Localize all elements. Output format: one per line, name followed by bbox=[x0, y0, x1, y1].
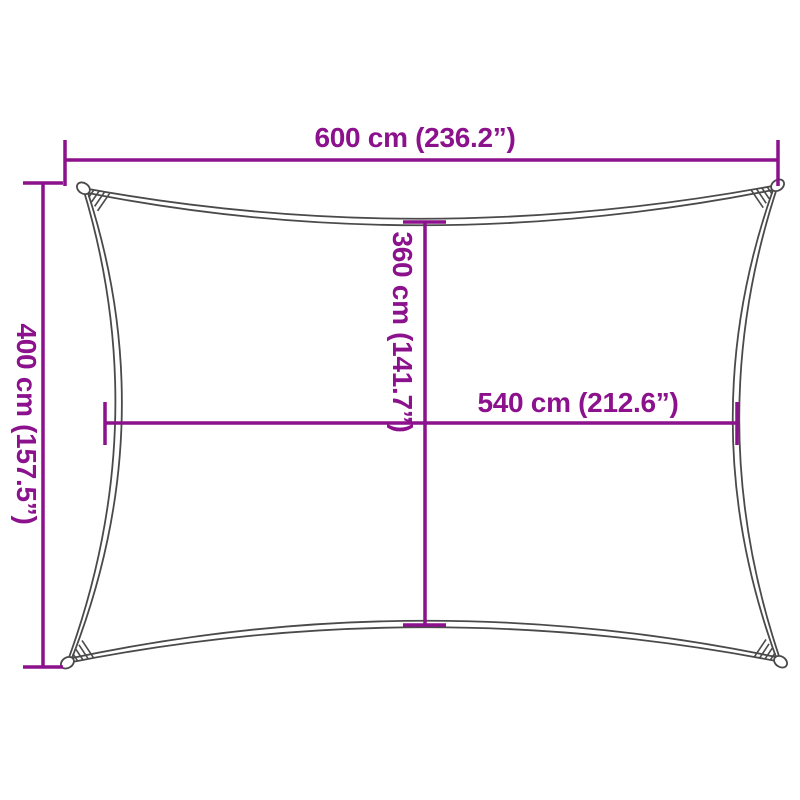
dimension-label-top-width: 600 cm (236.2”) bbox=[315, 122, 516, 154]
dimension-label-left-height: 400 cm (157.5”) bbox=[10, 324, 42, 525]
dimension-label-inner-height: 360 cm (141.7”) bbox=[386, 232, 418, 433]
diagram-canvas: 600 cm (236.2”) 400 cm (157.5”) 360 cm (… bbox=[0, 0, 800, 800]
dimension-label-inner-width: 540 cm (212.6”) bbox=[478, 387, 679, 419]
